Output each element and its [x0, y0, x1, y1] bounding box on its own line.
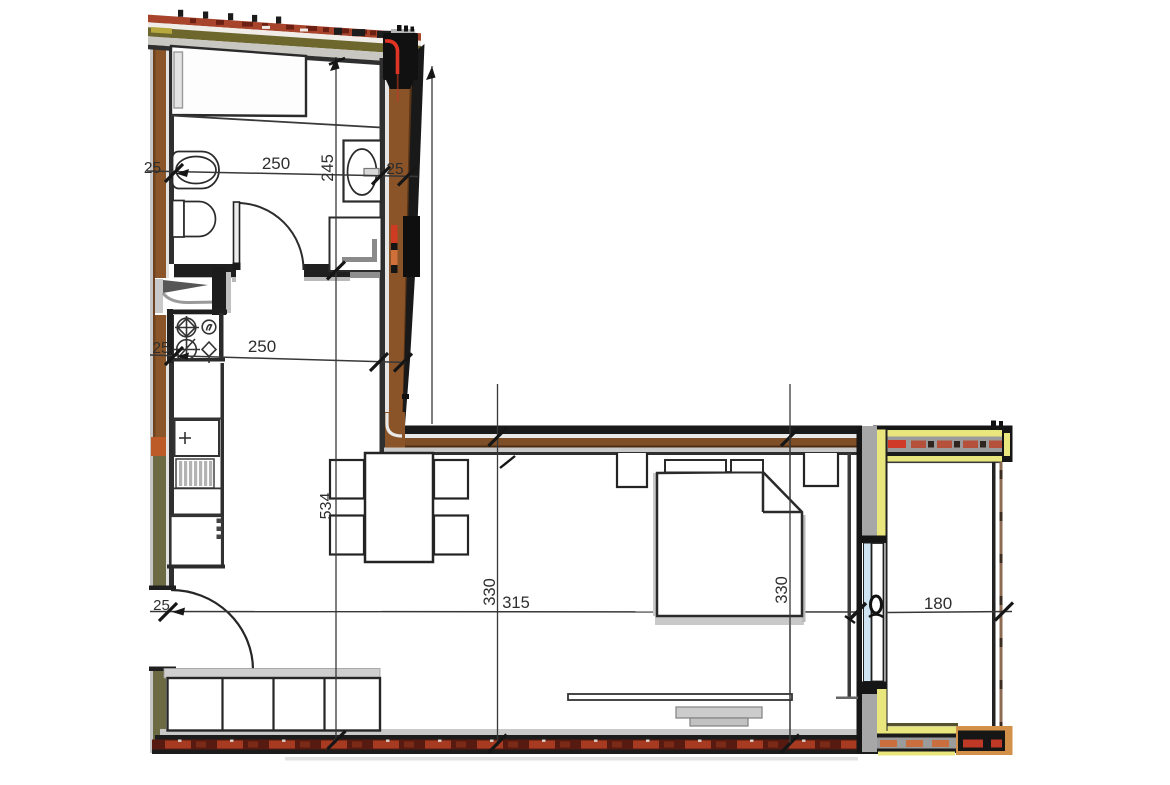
svg-text:25: 25	[153, 597, 170, 614]
svg-text:315: 315	[502, 594, 530, 612]
svg-text:534: 534	[318, 493, 335, 520]
svg-text:330: 330	[481, 578, 499, 606]
svg-text:245: 245	[319, 154, 337, 182]
svg-text:25: 25	[144, 160, 161, 177]
svg-text:250: 250	[248, 337, 276, 356]
svg-text:25: 25	[386, 161, 403, 178]
svg-text:180: 180	[924, 594, 952, 613]
svg-text:250: 250	[262, 154, 290, 173]
svg-text:25: 25	[152, 340, 169, 357]
svg-text:330: 330	[773, 576, 791, 604]
